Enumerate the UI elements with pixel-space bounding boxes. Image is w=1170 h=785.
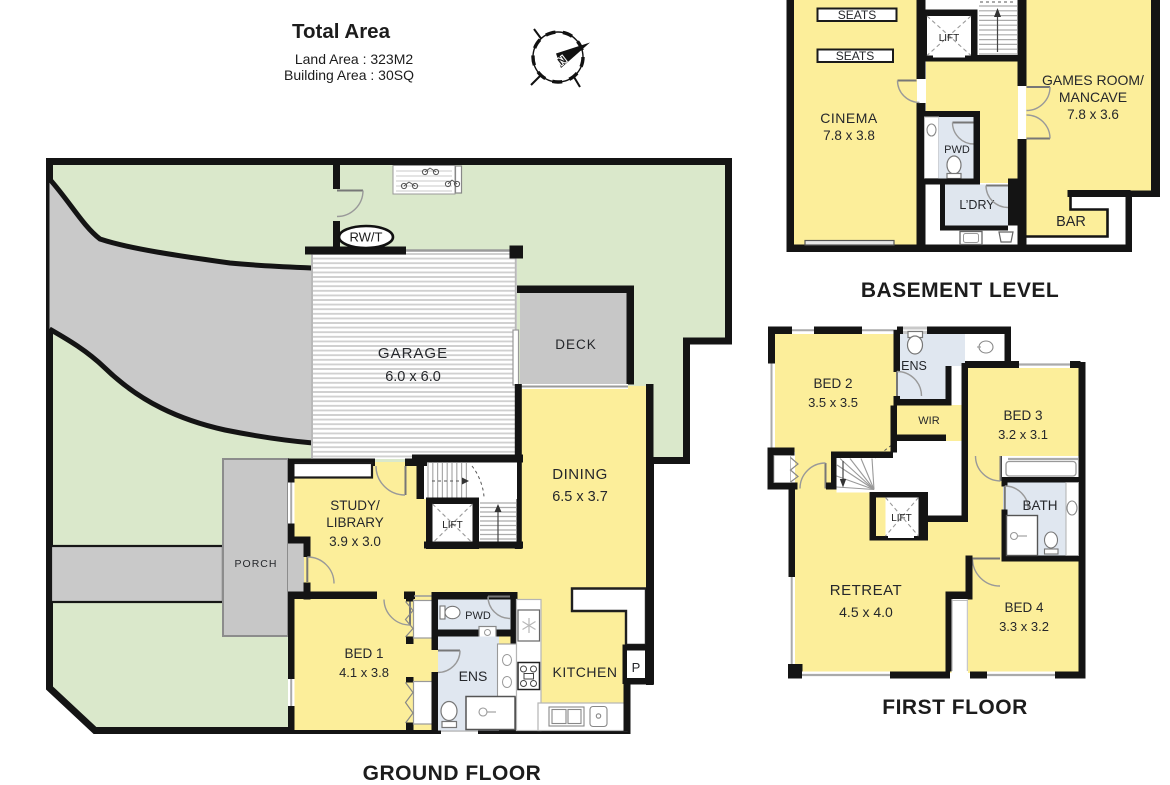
svg-text:LIBRARY: LIBRARY xyxy=(326,515,384,530)
svg-text:STUDY/: STUDY/ xyxy=(330,498,380,513)
svg-text:KITCHEN: KITCHEN xyxy=(553,664,618,680)
svg-text:7.8 x 3.8: 7.8 x 3.8 xyxy=(823,128,875,143)
svg-text:GROUND FLOOR: GROUND FLOOR xyxy=(363,762,542,785)
svg-text:6.5 x 3.7: 6.5 x 3.7 xyxy=(552,489,608,505)
svg-text:ENS: ENS xyxy=(459,668,488,684)
svg-text:3.2 x 3.1: 3.2 x 3.1 xyxy=(998,427,1048,442)
svg-text:BED 3: BED 3 xyxy=(1003,408,1042,423)
svg-text:PORCH: PORCH xyxy=(235,558,278,570)
svg-text:LIFT: LIFT xyxy=(891,513,912,524)
svg-text:Building Area : 30SQ: Building Area : 30SQ xyxy=(284,67,414,83)
svg-text:DECK: DECK xyxy=(555,337,597,352)
svg-text:3.9 x 3.0: 3.9 x 3.0 xyxy=(329,534,381,549)
svg-text:DINING: DINING xyxy=(552,466,608,483)
svg-text:BATH: BATH xyxy=(1022,498,1057,513)
svg-text:RETREAT: RETREAT xyxy=(830,582,902,599)
svg-text:3.3 x 3.2: 3.3 x 3.2 xyxy=(999,619,1049,634)
svg-text:SEATS: SEATS xyxy=(838,8,876,22)
svg-text:LIFT: LIFT xyxy=(442,520,463,531)
svg-text:Land Area : 323M2: Land Area : 323M2 xyxy=(295,51,414,67)
svg-text:GARAGE: GARAGE xyxy=(378,345,448,362)
svg-text:FIRST FLOOR: FIRST FLOOR xyxy=(882,696,1028,719)
svg-text:BED 4: BED 4 xyxy=(1004,600,1044,615)
svg-text:L’DRY: L’DRY xyxy=(959,198,995,212)
svg-text:GAMES ROOM/: GAMES ROOM/ xyxy=(1042,72,1144,88)
svg-text:Total Area: Total Area xyxy=(292,20,391,43)
svg-text:6.0 x 6.0: 6.0 x 6.0 xyxy=(385,369,441,385)
svg-text:BAR: BAR xyxy=(1056,214,1086,230)
svg-text:ENS: ENS xyxy=(901,359,927,373)
svg-text:MANCAVE: MANCAVE xyxy=(1059,89,1127,105)
svg-text:4.5 x 4.0: 4.5 x 4.0 xyxy=(839,604,893,620)
svg-text:SEATS: SEATS xyxy=(836,49,874,63)
svg-text:LIFT: LIFT xyxy=(939,33,960,44)
svg-text:CINEMA: CINEMA xyxy=(820,110,878,126)
svg-text:BED 1: BED 1 xyxy=(344,646,383,661)
svg-text:PWD: PWD xyxy=(944,144,970,156)
svg-text:RW/T: RW/T xyxy=(350,230,383,245)
svg-text:P: P xyxy=(632,660,641,675)
svg-text:3.5 x 3.5: 3.5 x 3.5 xyxy=(808,395,858,410)
svg-text:WIR: WIR xyxy=(918,415,939,427)
svg-text:7.8 x 3.6: 7.8 x 3.6 xyxy=(1067,107,1119,122)
svg-text:4.1 x 3.8: 4.1 x 3.8 xyxy=(339,665,389,680)
svg-text:PWD: PWD xyxy=(465,610,491,622)
svg-text:BASEMENT LEVEL: BASEMENT LEVEL xyxy=(861,279,1059,302)
svg-text:BED 2: BED 2 xyxy=(813,376,852,391)
